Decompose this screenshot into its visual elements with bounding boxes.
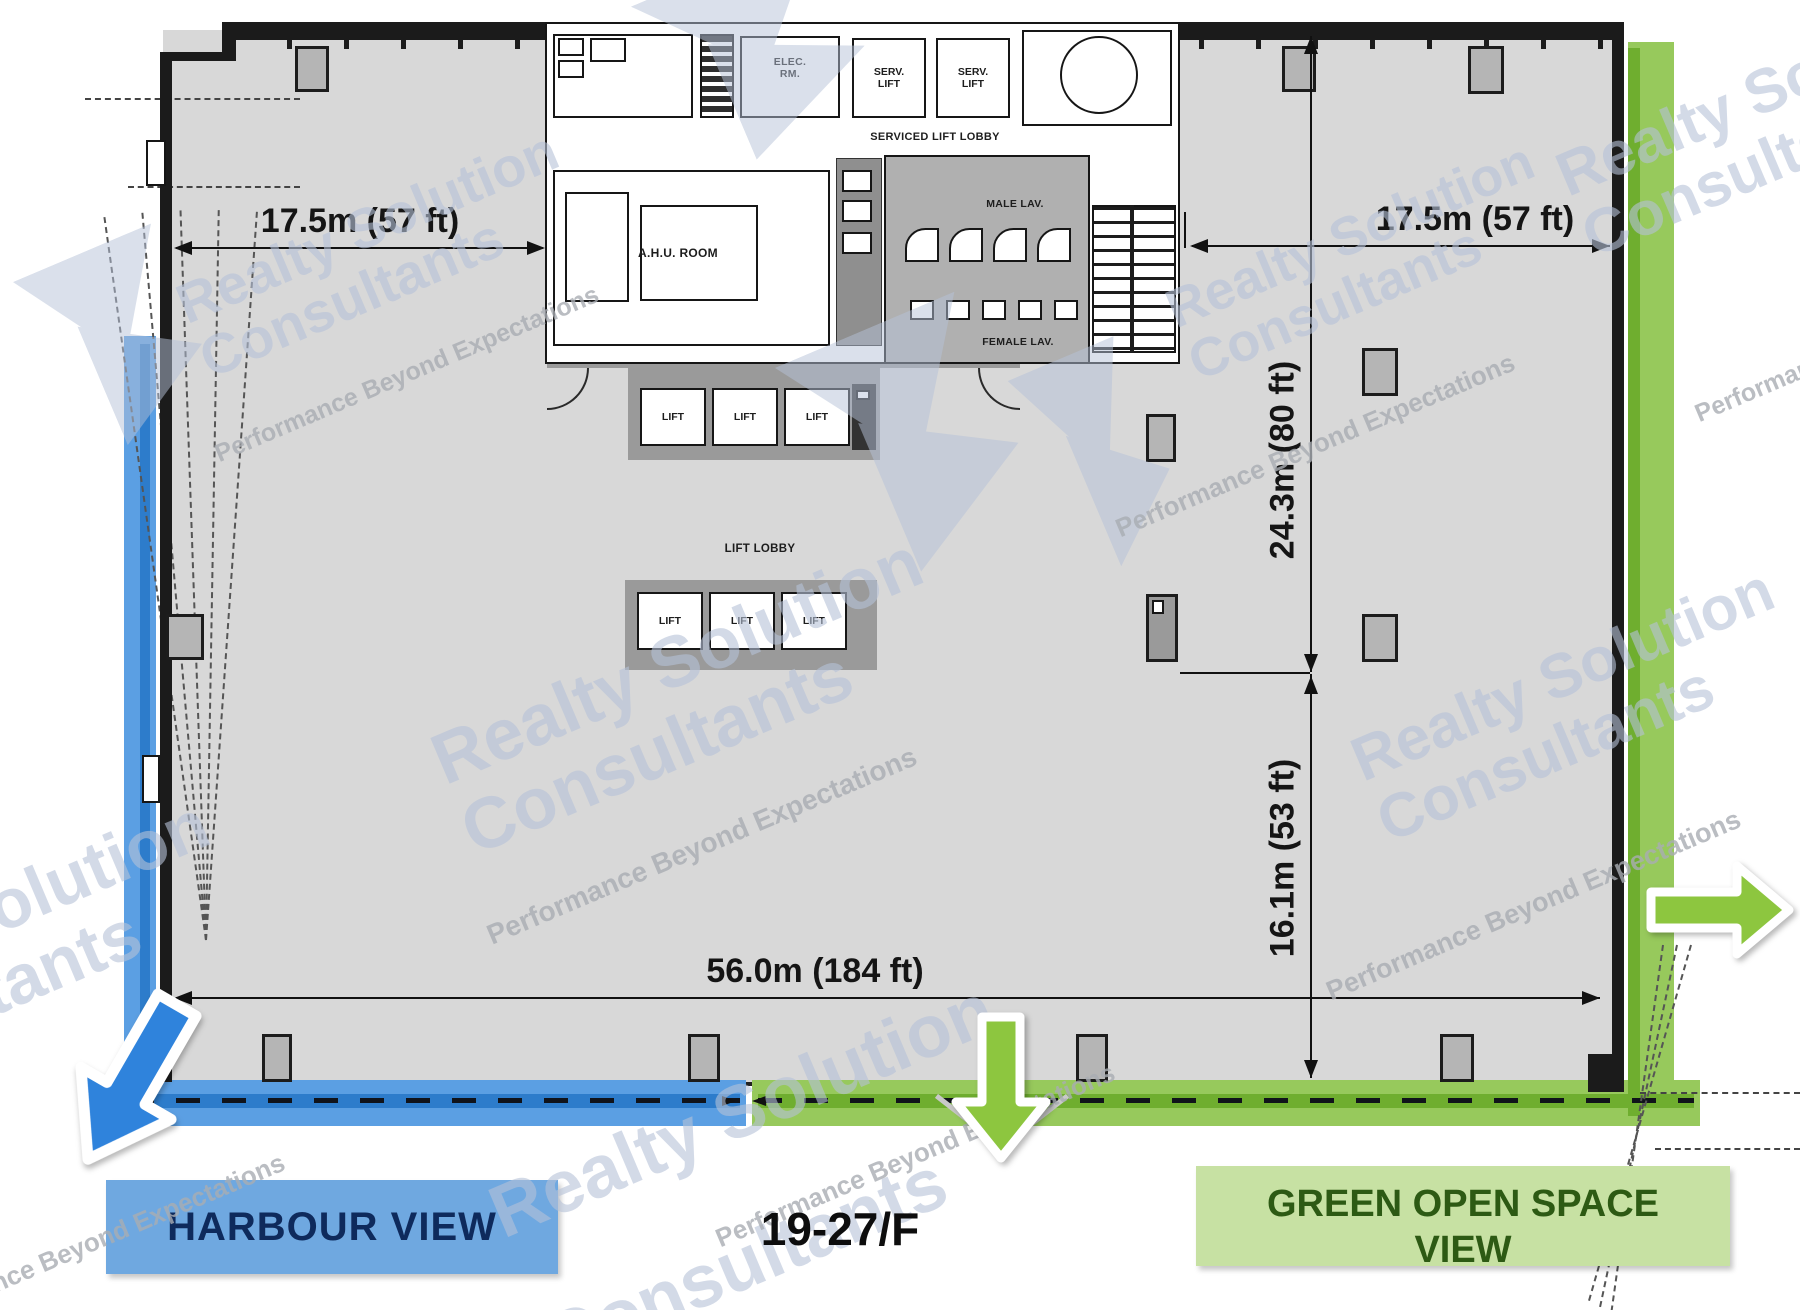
fixture [558, 60, 584, 78]
corner-jog [1588, 1054, 1624, 1092]
lift-shaft: LIFT [709, 592, 775, 650]
lift-lobby-label: LIFT LOBBY [725, 543, 796, 555]
dimension-line-right [1192, 245, 1610, 247]
spiral-stair [1060, 36, 1138, 114]
wc-fixture [982, 300, 1006, 320]
lift-label: LIFT [659, 615, 681, 627]
lift-shaft: LIFT [784, 388, 850, 446]
green-view-down-arrow-icon [950, 1012, 1052, 1164]
stair-divider [1130, 205, 1134, 353]
dimension-left-width: 17.5m (57 ft) [261, 202, 459, 241]
corner-step [222, 22, 236, 61]
green-band-stripe [1628, 48, 1640, 1116]
duct-detail [856, 390, 870, 400]
column [295, 46, 329, 92]
arrowhead [1304, 676, 1318, 694]
band-junction-mark [752, 1096, 766, 1106]
toilet-stall [1037, 228, 1071, 262]
dimension-lower-depth: 16.1m (53 ft) [1264, 759, 1303, 957]
property-line [1655, 1148, 1800, 1150]
floor-plan-page: ELEC. RM. SERV. LIFT SERV. LIFT SERVICED… [0, 0, 1800, 1310]
arrowhead [1304, 654, 1318, 672]
fixture [590, 38, 626, 62]
lift-shaft: LIFT [781, 592, 847, 650]
column [1146, 414, 1176, 462]
harbour-view-label: HARBOUR VIEW [106, 1180, 558, 1274]
toilet-stall [993, 228, 1027, 262]
dimension-upper-depth: 24.3m (80 ft) [1264, 361, 1303, 559]
service-lift-label: SERV. LIFT [866, 66, 912, 90]
column [1362, 348, 1398, 396]
green-view-text: GREEN OPEN SPACE VIEW [1233, 1182, 1693, 1273]
service-lift-shaft: SERV. LIFT [936, 38, 1010, 118]
wc-fixture [910, 300, 934, 320]
property-line [85, 98, 300, 100]
floor-range-label: 19-27/F [761, 1202, 920, 1256]
toilet-stall [949, 228, 983, 262]
wc-fixture [946, 300, 970, 320]
corner-step [160, 52, 230, 61]
duct-shaft [700, 34, 734, 118]
watermark-tagline: Performance Beyond Expectations [1691, 240, 1800, 428]
column [1362, 614, 1398, 662]
dimension-line-upper-depth [1310, 36, 1312, 672]
wall-fixture [146, 140, 166, 186]
serviced-lift-lobby-label: SERVICED LIFT LOBBY [870, 131, 1000, 143]
column [1440, 1034, 1474, 1082]
dimension-line-bottom [176, 997, 1600, 999]
property-line [1640, 1092, 1800, 1094]
ahu-room-label: A.H.U. ROOM [638, 246, 718, 260]
band-junction-mark [722, 1096, 736, 1106]
property-line [128, 186, 300, 188]
lift-label: LIFT [803, 615, 825, 627]
reference-line [1180, 672, 1310, 674]
lift-shaft: LIFT [637, 592, 703, 650]
male-lav-label: MALE LAV. [986, 198, 1044, 210]
arrowhead [1190, 239, 1208, 253]
column-detail [1152, 600, 1164, 614]
fixture [558, 38, 584, 56]
curtain-wall-dashes [130, 1098, 740, 1103]
service-lift-shaft: SERV. LIFT [852, 38, 926, 118]
fixture [842, 232, 872, 254]
lift-label: LIFT [662, 411, 684, 423]
ahu-equipment [565, 192, 629, 302]
column [262, 1034, 292, 1082]
fixture [842, 170, 872, 192]
arrowhead [1304, 36, 1318, 54]
dimension-bottom-width: 56.0m (184 ft) [706, 952, 923, 991]
female-lav-label: FEMALE LAV. [982, 336, 1054, 348]
elec-room-label: ELEC. RM. [767, 56, 813, 80]
arrowhead [527, 241, 545, 255]
column [166, 614, 204, 660]
arrowhead [1304, 1060, 1318, 1078]
wc-fixture [1054, 300, 1078, 320]
toilet-stall [905, 228, 939, 262]
staircase [1092, 205, 1176, 353]
lift-label: LIFT [806, 411, 828, 423]
lift-shaft: LIFT [712, 388, 778, 446]
green-open-space-view-label: GREEN OPEN SPACE VIEW [1196, 1166, 1730, 1266]
dimension-right-width: 17.5m (57 ft) [1376, 200, 1574, 239]
wall-fixture [142, 755, 160, 803]
column [1468, 46, 1504, 94]
column [688, 1034, 720, 1082]
arrowhead [1592, 239, 1610, 253]
lift-label: LIFT [734, 411, 756, 423]
harbour-view-text: HARBOUR VIEW [167, 1205, 497, 1250]
curtain-wall-dashes [758, 1098, 1694, 1103]
arrowhead [174, 241, 192, 255]
dimension-line-left [176, 247, 543, 249]
dimension-line-lower-depth [1310, 674, 1312, 1078]
lift-label: LIFT [731, 615, 753, 627]
left-wall [160, 52, 172, 1082]
wc-fixture [1018, 300, 1042, 320]
service-lift-label: SERV. LIFT [950, 66, 996, 90]
extension-line [1184, 212, 1186, 248]
arrowhead [1582, 991, 1600, 1005]
column [1076, 1034, 1108, 1082]
right-wall [1612, 40, 1624, 1082]
lift-shaft: LIFT [640, 388, 706, 446]
green-view-right-arrow-icon [1645, 858, 1795, 962]
fixture [842, 200, 872, 222]
